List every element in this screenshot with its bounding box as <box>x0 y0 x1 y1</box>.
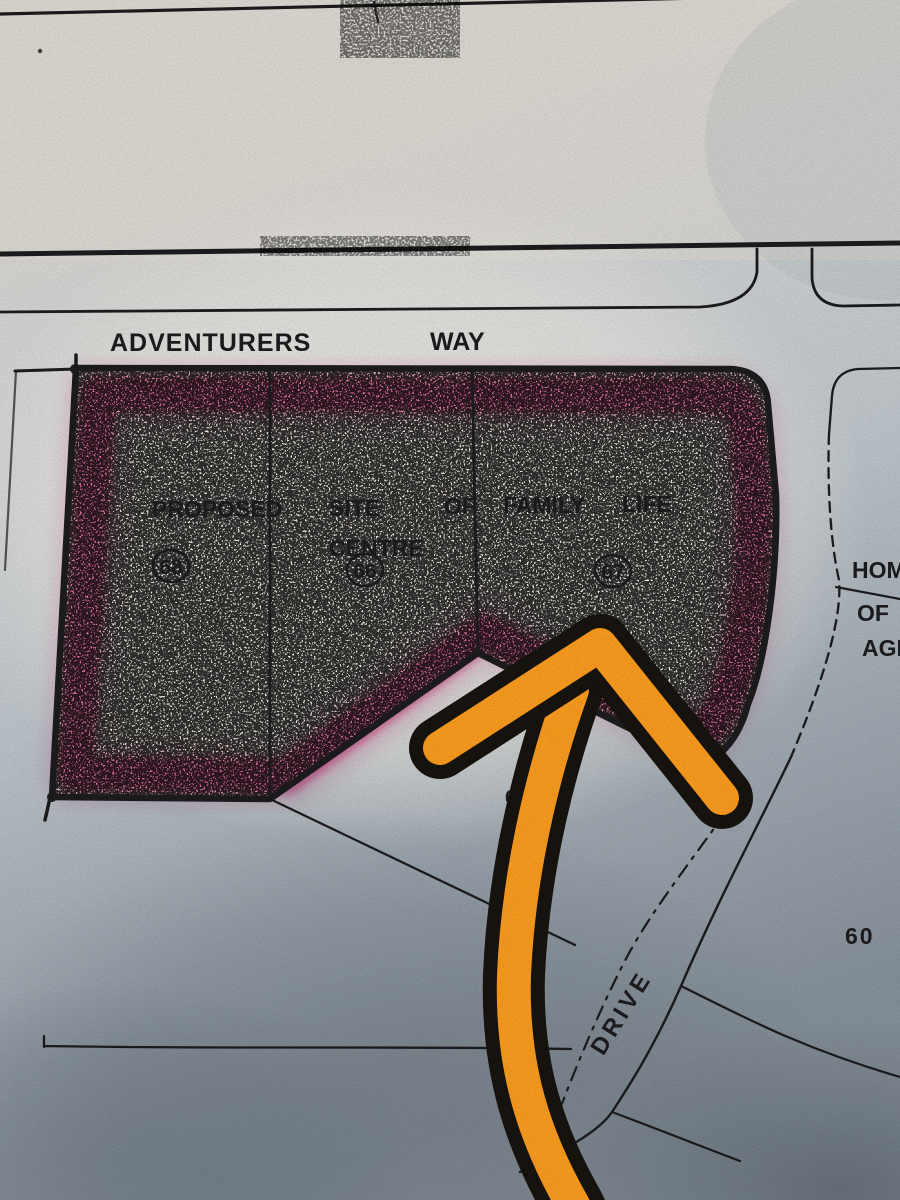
photo-grain <box>0 0 900 1200</box>
site-plan-map: ADVENTURERS WAY PROPOSED SITE OF FAMILY … <box>0 0 900 1200</box>
photographed-site-plan: ADVENTURERS WAY PROPOSED SITE OF FAMILY … <box>0 0 900 1200</box>
